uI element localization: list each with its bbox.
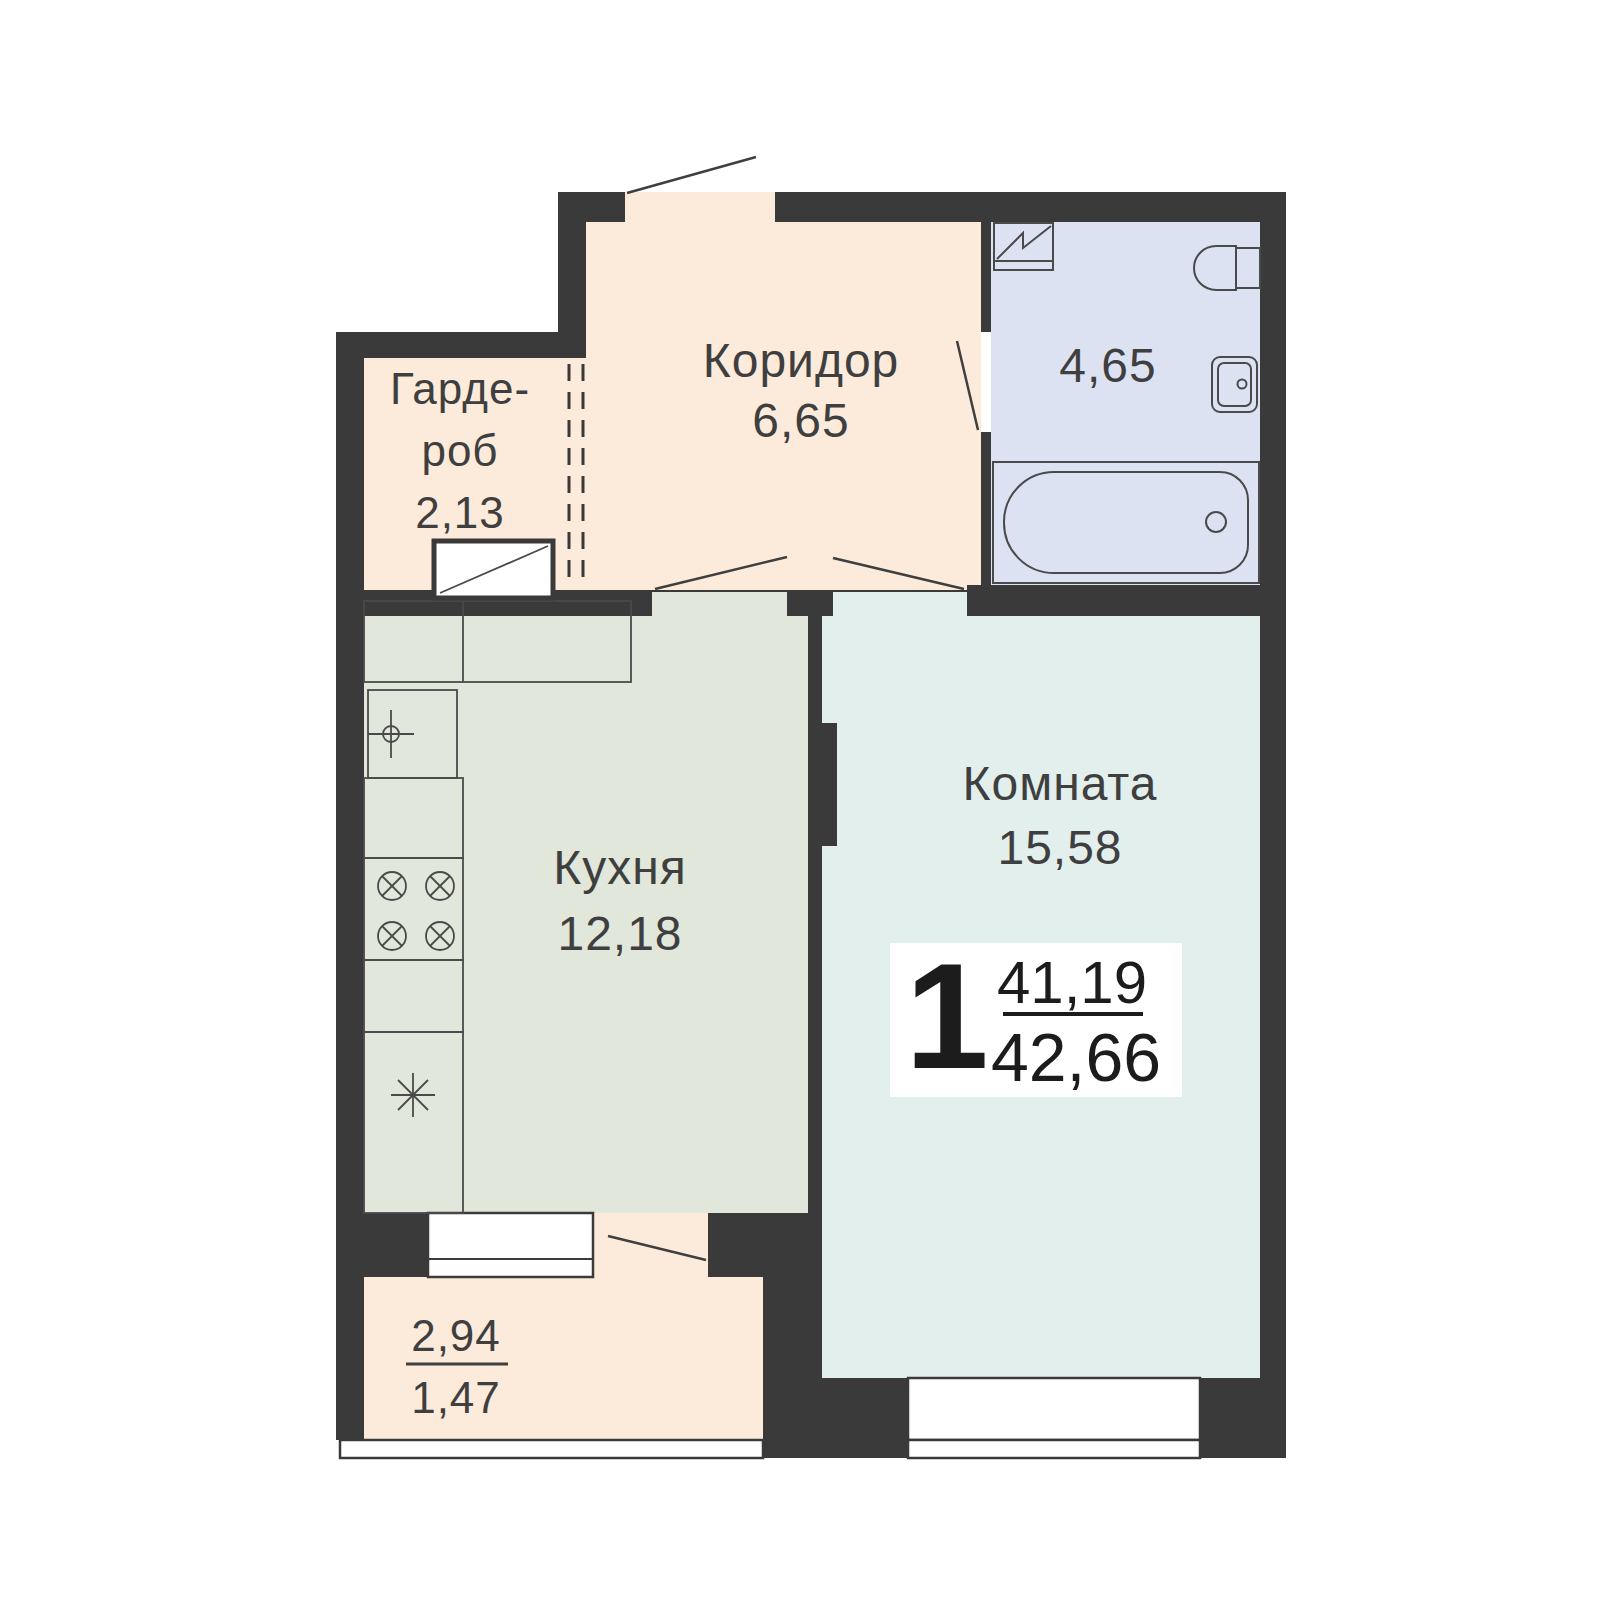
wall-pilaster — [822, 723, 837, 846]
room-window-outer-band — [908, 1440, 1200, 1458]
balcony-area-full: 2,94 — [411, 1311, 501, 1360]
wall-kitchen-room-divider — [808, 616, 822, 1213]
badge-area-living: 41,19 — [997, 949, 1147, 1016]
balcony-glazing-icon — [340, 1440, 763, 1458]
balcony-door-floor — [593, 1213, 708, 1277]
wall-top-right — [775, 192, 1286, 222]
kitchen-label: Кухня — [553, 841, 686, 894]
living-room-label: Комната — [963, 757, 1158, 810]
floor-plan-page: Коридор 6,65 Гарде- роб 2,13 4,65 Кухня … — [0, 0, 1620, 1620]
wardrobe-area: 2,13 — [415, 488, 505, 537]
wall-mid-right — [967, 585, 1260, 616]
wall-balcony-top-left — [364, 1213, 428, 1277]
kitchen-floor — [364, 591, 808, 1213]
entrance-door-swing-icon — [627, 157, 756, 193]
wall-bottom-left-of-window — [822, 1378, 908, 1458]
wall-mid-block — [787, 590, 833, 616]
room-window-icon — [908, 1378, 1200, 1440]
wall-balcony-top-right — [708, 1213, 763, 1277]
corridor-label: Коридор — [703, 334, 900, 387]
wall-balcony-room-column — [763, 1213, 822, 1458]
bathroom-area: 4,65 — [1059, 339, 1156, 392]
balcony-area-reduced: 1,47 — [411, 1373, 501, 1422]
wardrobe-cabinet-icon — [434, 541, 553, 598]
floor-plan-svg: Коридор 6,65 Гарде- роб 2,13 4,65 Кухня … — [0, 0, 1620, 1620]
wall-corridor-left — [558, 192, 586, 332]
wall-wardrobe-top — [336, 332, 586, 358]
area-badge: 1 41,19 42,66 — [890, 932, 1182, 1100]
wardrobe-label-line1: Гарде- — [390, 364, 530, 413]
wardrobe-label-line2: роб — [421, 426, 498, 475]
living-room-area: 15,58 — [997, 821, 1122, 874]
badge-rooms-count: 1 — [905, 932, 988, 1100]
wall-bottom-right-of-window — [1200, 1378, 1260, 1458]
entrance-threshold-floor — [625, 192, 775, 222]
corridor-area: 6,65 — [752, 394, 849, 447]
kitchen-area: 12,18 — [557, 907, 682, 960]
badge-area-total: 42,66 — [991, 1019, 1161, 1095]
kitchen-window-icon — [428, 1213, 593, 1277]
wall-bathroom-partition-upper — [981, 222, 991, 332]
wall-left — [336, 332, 364, 1440]
wall-bathroom-partition-lower — [981, 432, 991, 585]
wall-right — [1260, 192, 1286, 1458]
